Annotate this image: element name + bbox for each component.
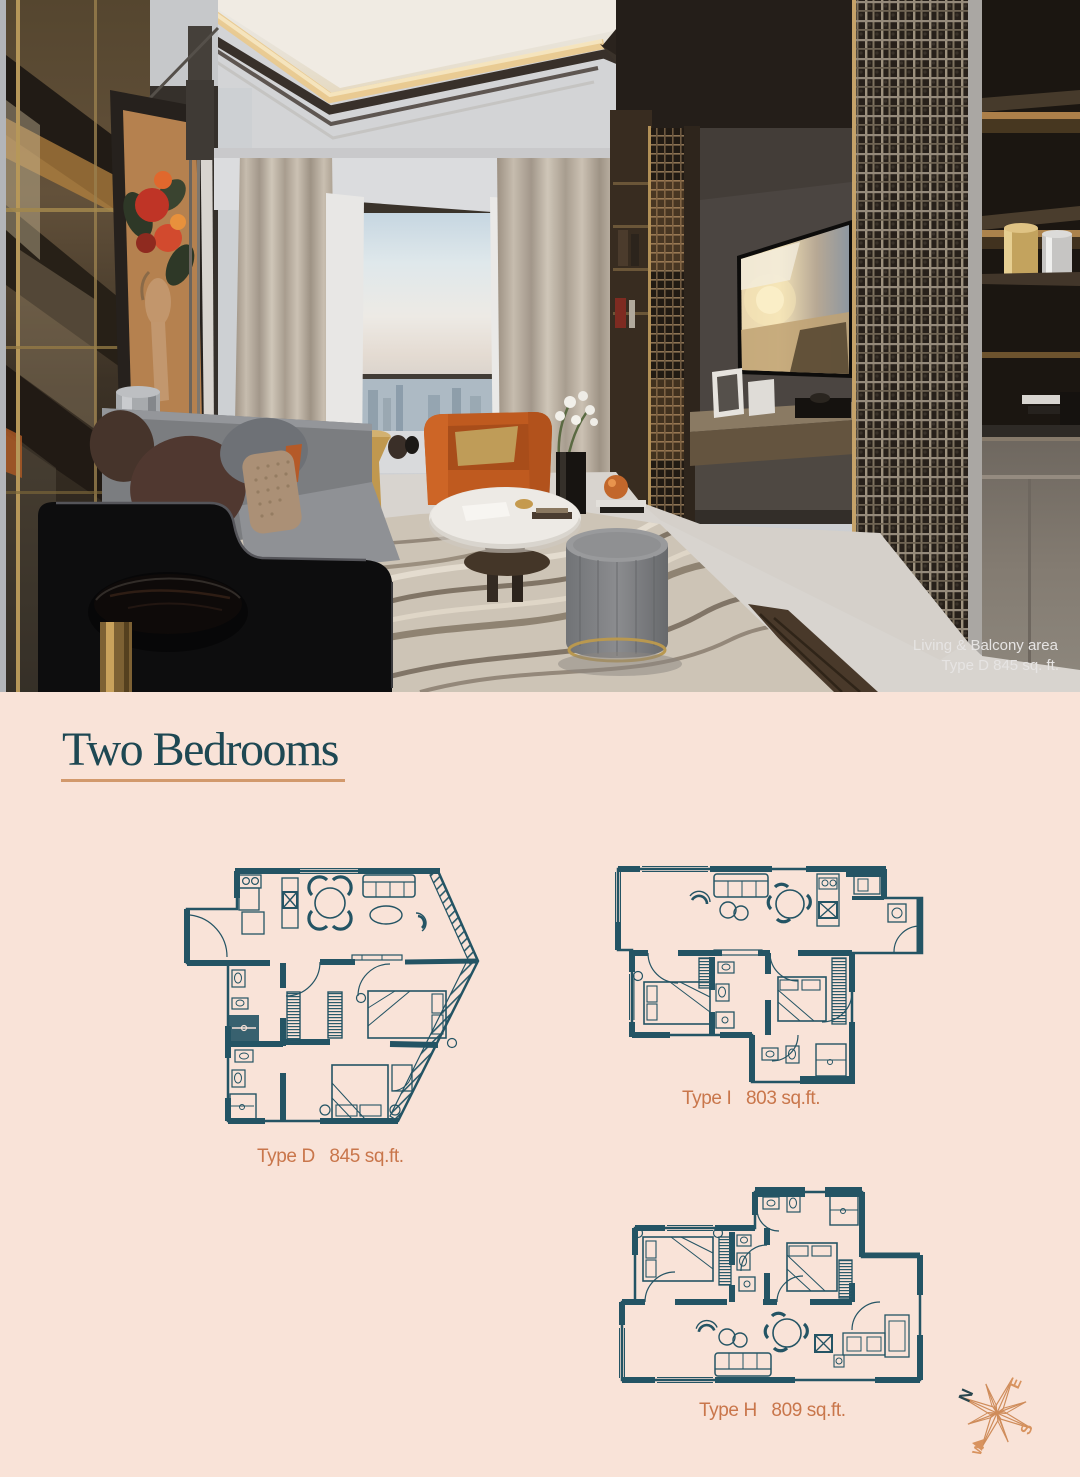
- svg-text:N: N: [955, 1386, 977, 1405]
- svg-text:Living & Balcony area: Living & Balcony area: [913, 637, 1059, 654]
- svg-text:Type D 845 sq. ft.: Type D 845 sq. ft.: [941, 657, 1059, 674]
- svg-text:S: S: [1017, 1421, 1037, 1437]
